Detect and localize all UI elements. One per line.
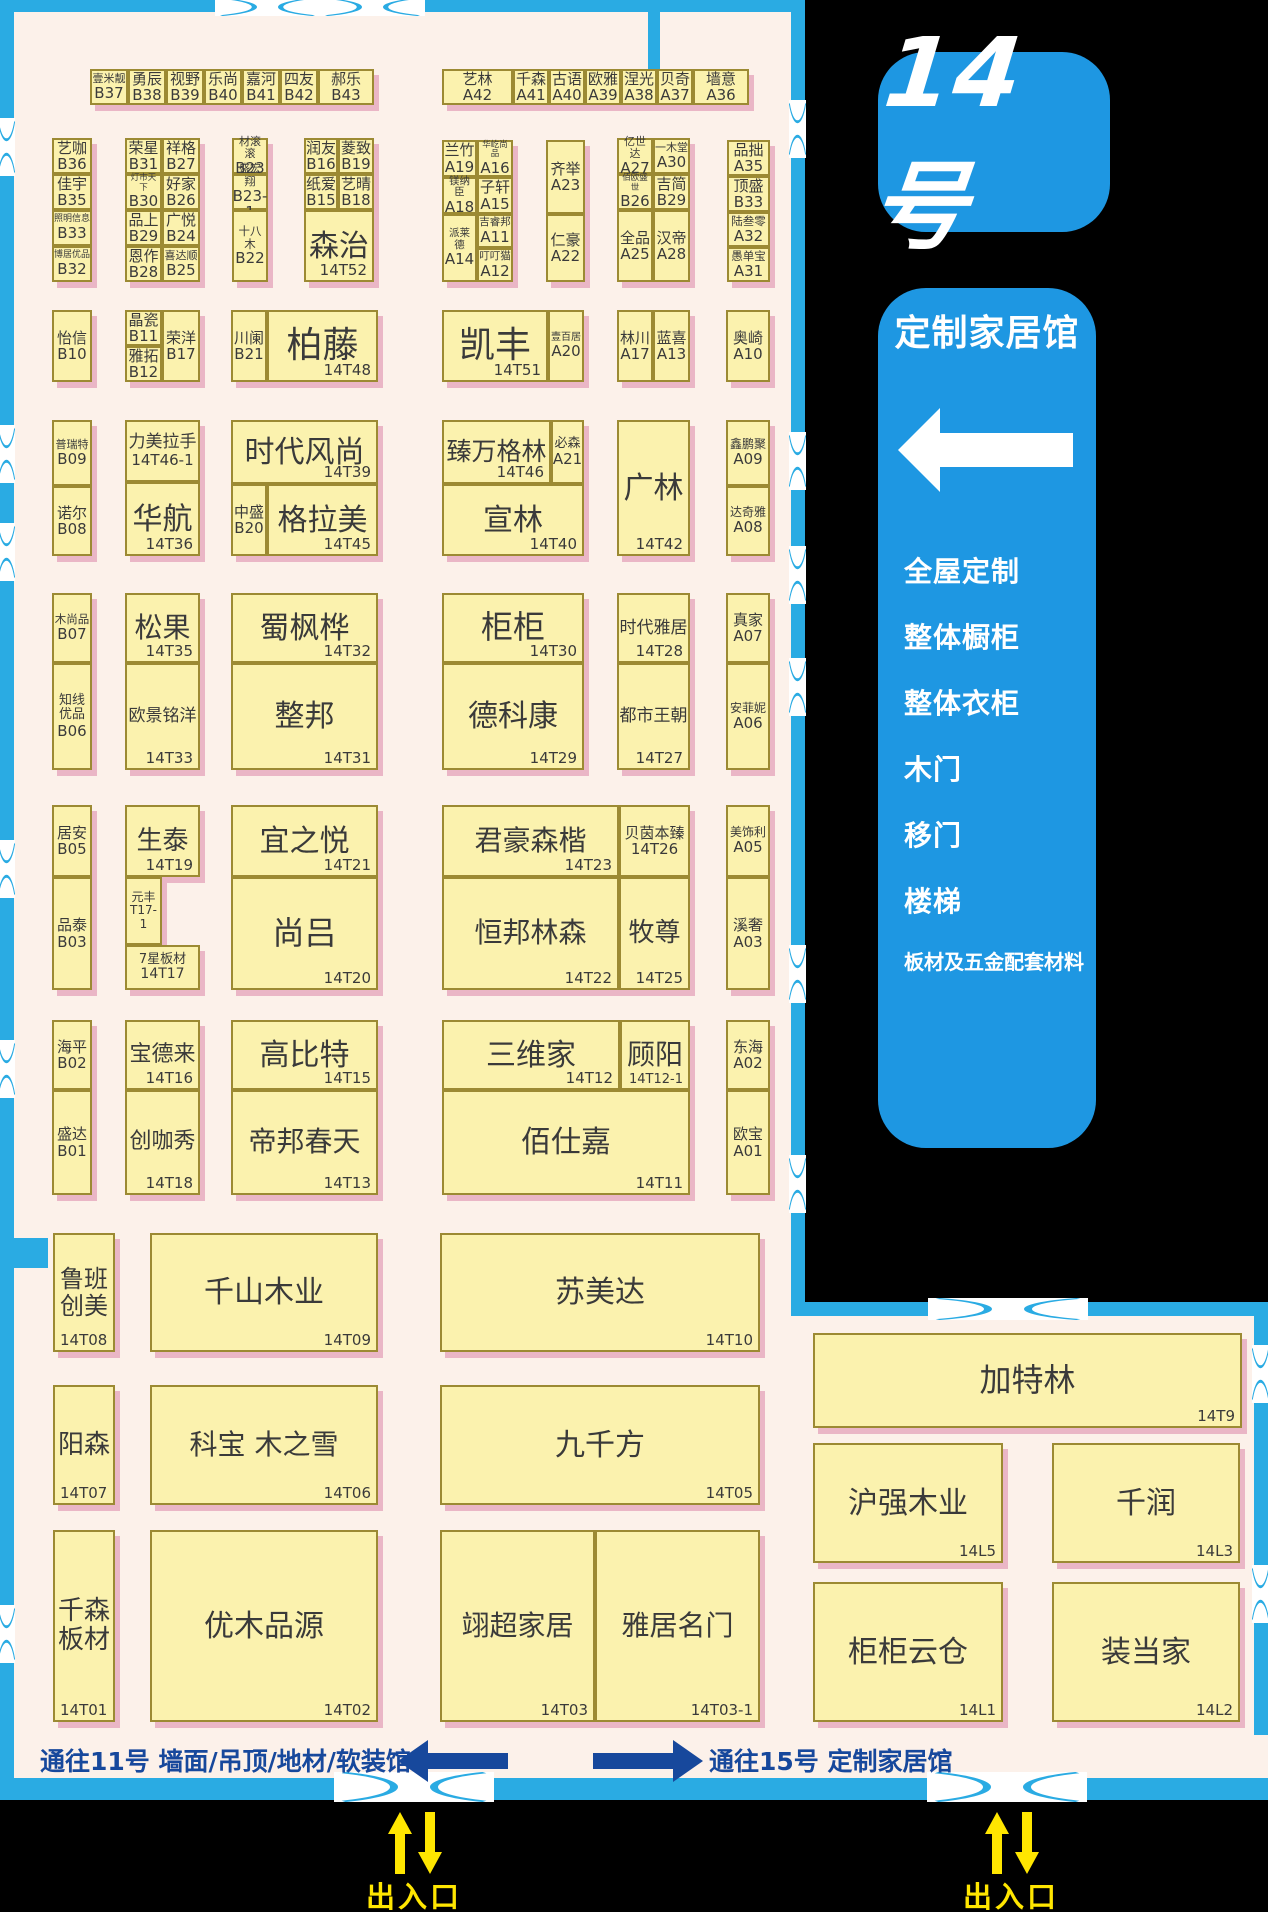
booth-id: B39 (170, 87, 199, 104)
booth-id: B20 (234, 520, 263, 537)
booth: 佰仕嘉14T11 (442, 1090, 690, 1195)
booth-id: B33 (57, 225, 86, 242)
booth-name: 科宝 木之雪 (190, 1430, 339, 1461)
booth-name: 东海 (733, 1039, 763, 1056)
booth-id: 14T48 (324, 363, 371, 378)
booth-id: A28 (657, 246, 686, 263)
booth-id: 14T45 (324, 537, 371, 552)
booth-name: 齐举 (550, 161, 580, 178)
booth: 佰欧盛世B26 (617, 174, 653, 210)
booth: 千山木业14T09 (150, 1233, 378, 1352)
door-icon (789, 100, 806, 158)
booth: 森治14T52 (304, 210, 374, 282)
booth: 镁纳臣A18 (442, 177, 477, 214)
booth-name: 贝茵本臻 (624, 825, 684, 842)
booth-name: 蜀枫桦 (260, 612, 350, 645)
booth-name: 苏美达 (555, 1276, 645, 1309)
booth: 时代雅居14T28 (617, 593, 690, 663)
booth-id: A21 (553, 451, 582, 468)
booth: 安菲妮A06 (726, 663, 770, 770)
booth: 艺咖B36 (52, 138, 92, 174)
booth-id: 14T12 (566, 1071, 613, 1086)
booth-name: 吉睿邦 (479, 217, 511, 229)
booth: 德科康14T29 (442, 663, 584, 770)
booth-id: A25 (620, 246, 649, 263)
category-item: 木门 (904, 748, 1096, 788)
booth-name: 壹米靓 (93, 73, 126, 85)
booth-id: A41 (516, 87, 545, 104)
booth-id: B16 (306, 156, 335, 173)
booth-id: 14T22 (565, 971, 612, 986)
hall-number: 14号 (865, 17, 1123, 268)
arrow-down-icon (418, 1812, 442, 1874)
booth-name: 君豪森楷 (474, 826, 586, 857)
booth: 臻万格林14T46 (442, 420, 551, 484)
booth-name: 好家 (166, 176, 196, 193)
booth-name: 知线优品 (54, 694, 90, 723)
booth: 贝奇A37 (657, 69, 693, 105)
category-item: 板材及五金配套材料 (904, 946, 1096, 975)
category-panel: 定制家居馆 全屋定制整体橱柜整体衣柜木门移门楼梯板材及五金配套材料 (878, 288, 1096, 1148)
booth: 品拙A35 (727, 140, 770, 176)
booth-name: 纸爱 (306, 176, 336, 193)
booth-name: 凯丰 (459, 326, 531, 366)
door-icon (0, 1040, 15, 1098)
booth-id: 14T46-1 (131, 452, 193, 469)
booth-id: A39 (588, 87, 617, 104)
booth-id: 14T09 (324, 1333, 371, 1348)
booth-name: 顾阳 (627, 1040, 683, 1071)
booth: 祥格B27 (162, 138, 200, 174)
booth: 子轩A15 (477, 177, 513, 214)
booth-name: 必森 (554, 437, 580, 451)
booth-id: B11 (129, 328, 158, 345)
booth-id: B05 (57, 841, 86, 858)
booth-name: 整邦 (275, 700, 335, 733)
booth-name: 诺尔 (57, 505, 87, 522)
entrance-arrows-right (985, 1812, 1039, 1874)
booth-id: B03 (57, 934, 86, 951)
booth: 古语A40 (549, 69, 585, 105)
booth: 美饰利A05 (726, 805, 770, 877)
category-item: 移门 (904, 814, 1096, 854)
booth-name: 7星板材 (139, 953, 186, 967)
booth-name: 生泰 (136, 827, 188, 856)
booth-name: 牧尊 (628, 919, 680, 948)
booth-id: A31 (734, 263, 763, 280)
booth-id: 14T20 (324, 971, 371, 986)
booth: 海平B02 (52, 1020, 92, 1090)
passage-right-label: 通往15号 定制家居馆 (709, 1742, 953, 1778)
booth: 汉帝A28 (653, 210, 690, 282)
booth: 佳宇B35 (52, 174, 92, 210)
booth-name: 尚吕 (272, 916, 336, 951)
booth: 知线优品B06 (52, 663, 92, 770)
booth-id: A37 (660, 87, 689, 104)
booth: 勇辰B38 (128, 69, 166, 105)
booth-id: 14T35 (146, 644, 193, 659)
booth: 千润14L3 (1052, 1443, 1240, 1563)
booth: 品泰B03 (52, 877, 92, 990)
wall (14, 1238, 48, 1268)
bottom-bar: 通往11号 墙面/吊顶/地材/软装馆 通往15号 定制家居馆 (0, 1735, 1268, 1778)
booth: 生泰14T19 (125, 805, 200, 877)
booth: 嘉河B41 (242, 69, 280, 105)
booth-name: 柜柜 (481, 610, 545, 645)
booth-id: B15 (306, 192, 335, 209)
booth: 照明信息B33 (52, 210, 92, 246)
booth-id: 14T40 (530, 537, 577, 552)
booth-id: B21 (234, 346, 263, 363)
booth-id: 14T07 (60, 1486, 107, 1501)
booth: 齐举A23 (546, 140, 585, 214)
booth-id: A36 (706, 87, 735, 104)
booth-id: B02 (57, 1055, 86, 1072)
booth-name: 奥崎 (733, 330, 763, 347)
booth-id: A15 (480, 196, 509, 213)
booth: 创咖秀14T18 (125, 1090, 200, 1195)
booth-name: 千山木业 (204, 1276, 324, 1309)
booth-name: 格拉美 (278, 504, 368, 537)
booth-name: 翊超家居 (461, 1611, 573, 1642)
booth-name: 千森 (516, 71, 546, 88)
booth: 格拉美14T45 (267, 484, 378, 556)
booth: 郝乐B43 (318, 69, 374, 105)
booth-name: 安菲妮 (730, 702, 766, 715)
booth-id: 14T9 (1197, 1409, 1235, 1424)
booth: 全品A25 (617, 210, 653, 282)
booth-name: 全品 (620, 230, 650, 247)
booth-id: 14T01 (60, 1703, 107, 1718)
booth-name: 华航 (133, 503, 193, 536)
booth-name: 汉帝 (656, 230, 686, 247)
booth: 东海A02 (726, 1020, 770, 1090)
booth: 整邦14T31 (231, 663, 378, 770)
booth-id: 14T46 (497, 465, 544, 480)
booth-id: 14T31 (324, 751, 371, 766)
booth: 7星板材14T17 (125, 945, 200, 990)
booth-id: 14T33 (146, 751, 193, 766)
door-icon (789, 1155, 806, 1213)
booth-id: 14T27 (636, 751, 683, 766)
booth-name: 祥格 (166, 140, 196, 157)
booth-name: 欧景铭洋 (129, 707, 197, 726)
booth: 达奇雅A08 (726, 486, 770, 556)
booth-id: 14T29 (530, 751, 577, 766)
booth-id: A12 (480, 263, 509, 280)
booth-name: 子轩 (480, 179, 510, 196)
door-icon (215, 0, 320, 16)
booth-name: 品泰 (57, 917, 87, 934)
booth: 宣林14T40 (442, 484, 584, 556)
category-item: 楼梯 (904, 880, 1096, 920)
door-icon (789, 546, 806, 604)
booth-id: B29 (657, 192, 686, 209)
booth-name: 真家 (733, 612, 763, 629)
booth-id: B36 (57, 156, 86, 173)
booth-name: 松果 (134, 613, 190, 644)
booth: 华航14T36 (125, 482, 200, 556)
booth-id: B42 (284, 87, 313, 104)
booth-name: 十八木 (234, 225, 266, 250)
booth-name: 怡信 (57, 330, 87, 347)
door-icon (0, 1605, 15, 1663)
booth: 千森板材14T01 (53, 1530, 115, 1722)
passage-right-arrow-icon (593, 1740, 703, 1786)
booth-id: B22 (235, 250, 264, 267)
booth: 帝邦春天14T13 (231, 1090, 378, 1195)
booth-name: 鲁班创美 (55, 1266, 113, 1319)
booth: 欧景铭洋14T33 (125, 663, 200, 770)
booth-id: A14 (445, 251, 474, 268)
booth-id: B09 (57, 451, 86, 468)
booth-id: B26 (166, 192, 195, 209)
booth-name: 海平 (57, 1039, 87, 1056)
booth-id: A13 (657, 346, 686, 363)
booth: 欧雅A39 (585, 69, 621, 105)
door-icon (789, 658, 806, 716)
booth-name: 愚单宝 (731, 250, 766, 263)
booth-name: 都市王朝 (620, 707, 688, 726)
booth: 派莱德A14 (442, 214, 477, 282)
booth: 亿世达A27 (617, 138, 653, 174)
booth-id: B18 (341, 192, 370, 209)
arrow-up-icon (388, 1812, 412, 1874)
booth-id: B41 (246, 87, 275, 104)
booth: 吉简B29 (653, 174, 690, 210)
door-icon (0, 118, 15, 176)
arrow-down-icon (1015, 1812, 1039, 1874)
booth: 诺尔B08 (52, 486, 92, 556)
booth-name: 喜达顺 (165, 250, 198, 262)
booth-id: A05 (733, 839, 762, 856)
booth: 十八木B22 (232, 210, 268, 282)
booth-id: 14L1 (959, 1703, 996, 1718)
booth: 华屹尚品A16 (477, 140, 513, 177)
booth-name: 嘉河 (246, 71, 276, 88)
booth-id: 14T13 (324, 1176, 371, 1191)
category-panel-title: 定制家居馆 (878, 304, 1096, 356)
booth: 吉睿邦A11 (477, 214, 513, 248)
booth: 顾阳14T12-1 (620, 1020, 690, 1090)
booth-id: B12 (129, 364, 158, 381)
booth: 好家B26 (162, 174, 200, 210)
booth-id: A30 (657, 154, 686, 171)
booth-id: 14T39 (324, 465, 371, 480)
booth: 雅拓B12 (125, 346, 162, 382)
booth: 顶盛B33 (727, 176, 770, 212)
booth-name: 装当家 (1101, 1636, 1191, 1669)
booth: 川阑B21 (231, 310, 267, 382)
booth-name: 佰仕嘉 (521, 1126, 611, 1159)
booth-id: A42 (463, 87, 492, 104)
booth: 愚单宝A31 (727, 247, 770, 282)
booth-id: T17-1 (127, 904, 160, 930)
booth-id: 14T36 (146, 537, 193, 552)
entrance-label-right: 出入口 (963, 1874, 1059, 1912)
booth: 恩作B28 (125, 246, 162, 282)
booth: 恒邦林森14T22 (442, 877, 619, 990)
booth-name: 顶盛 (733, 178, 763, 195)
booth-id: B29 (129, 228, 158, 245)
booth-name: 柜柜云仓 (848, 1636, 968, 1669)
booth-name: 宜之悦 (260, 825, 350, 858)
booth-id: A11 (480, 229, 509, 246)
booth-name: 广悦 (166, 212, 196, 229)
booth-name: 材滚滚 (234, 136, 266, 160)
booth: 雅居名门14T03-1 (595, 1530, 760, 1722)
booth: 纸爱B15 (304, 174, 338, 210)
booth: 菱致B19 (338, 138, 374, 174)
booth-id: 14T32 (324, 644, 371, 659)
booth: 高比特14T15 (231, 1020, 378, 1090)
booth: 翊超家居14T03 (440, 1530, 595, 1722)
booth-name: 涅光 (624, 71, 654, 88)
booth-name: 居安 (57, 825, 87, 842)
booth-name: 郝乐 (331, 71, 361, 88)
booth: 都市王朝14T27 (617, 663, 690, 770)
booth: 普瑞特B09 (52, 420, 92, 486)
booth: 壹百居A20 (548, 310, 584, 382)
booth-name: 九千方 (555, 1429, 645, 1462)
door-icon (1252, 1345, 1268, 1403)
booth-id: 14T19 (146, 858, 193, 873)
booth-name: 古语 (552, 71, 582, 88)
booth-id: B30 (129, 193, 158, 210)
booth-id: 14T03 (541, 1703, 588, 1718)
booth-id: 14T03-1 (691, 1703, 753, 1718)
wall (0, 0, 14, 1800)
booth: 荣洋B17 (162, 310, 200, 382)
booth-name: 千森板材 (55, 1597, 113, 1654)
booth-id: A35 (734, 158, 763, 175)
booth-name: 森治 (309, 230, 369, 263)
booth-name: 盛宏翔 (234, 163, 266, 187)
booth: 贝茵本臻14T26 (619, 805, 690, 877)
booth: 兰竹A19 (442, 140, 477, 177)
booth-name: 品上 (128, 212, 158, 229)
booth-id: 14T06 (324, 1486, 371, 1501)
booth: 盛宏翔B23-1 (232, 174, 268, 210)
booth-name: 溪奢 (733, 917, 763, 934)
booth-id: B37 (94, 85, 123, 102)
booth-id: A16 (480, 160, 509, 177)
passage-left-arrow-icon (398, 1740, 508, 1786)
booth-id: 14T26 (631, 841, 678, 858)
booth: 宝德来14T16 (125, 1020, 200, 1090)
booth-name: 菱致 (341, 140, 371, 157)
booth-id: A32 (734, 228, 763, 245)
booth-id: B38 (132, 87, 161, 104)
booth-name: 欧雅 (588, 71, 618, 88)
booth-id: B01 (57, 1143, 86, 1160)
booth-name: 臻万格林 (446, 438, 546, 466)
booth-name: 叮叮猫 (479, 251, 511, 263)
booth: 荣星B31 (125, 138, 162, 174)
booth: 喜达顺B25 (162, 246, 200, 282)
booth-name: 品拙 (733, 142, 763, 159)
booth: 三维家14T12 (442, 1020, 620, 1090)
booth: 润友B16 (304, 138, 338, 174)
booth-id: A06 (733, 715, 762, 732)
booth-name: 吉简 (656, 176, 686, 193)
door-icon (0, 840, 15, 898)
booth: 一木堂A30 (653, 138, 690, 174)
booth-name: 四友 (284, 71, 314, 88)
booth: 九千方14T05 (440, 1385, 760, 1505)
booth-id: 14T18 (146, 1176, 193, 1191)
booth-name: 加特林 (979, 1363, 1075, 1398)
booth: 晶瓷B11 (125, 310, 162, 346)
booth: 阳森14T07 (53, 1385, 115, 1505)
booth-id: A03 (733, 934, 762, 951)
booth-id: 14T23 (565, 858, 612, 873)
booth: 松果14T35 (125, 593, 200, 663)
booth-name: 佰欧盛世 (619, 174, 651, 193)
booth-name: 视野 (170, 71, 200, 88)
booth: 柜柜云仓14L1 (813, 1582, 1003, 1722)
booth-name: 中盛 (234, 504, 264, 521)
booth: 奥崎A10 (726, 310, 770, 382)
booth: 鲁班创美14T08 (53, 1233, 115, 1352)
booth-id: 14T21 (324, 858, 371, 873)
booth-name: 时代雅居 (620, 619, 688, 638)
booth-name: 蓝喜 (656, 330, 686, 347)
booth-id: B27 (166, 156, 195, 173)
booth-name: 贝奇 (660, 71, 690, 88)
booth-id: 14T10 (706, 1333, 753, 1348)
booth-id: A07 (733, 628, 762, 645)
booth-id: B17 (166, 346, 195, 363)
booth-id: A08 (733, 519, 762, 536)
booth: 优木品源14T02 (150, 1530, 378, 1722)
booth-id: 14L5 (959, 1544, 996, 1559)
category-item: 整体橱柜 (904, 616, 1096, 656)
booth-id: A09 (733, 451, 762, 468)
booth-id: A02 (733, 1055, 762, 1072)
booth-name: 阳森 (58, 1431, 110, 1460)
booth-name: 柏藤 (286, 326, 358, 366)
booth-name: 恒邦林森 (474, 918, 586, 949)
booth: 欧宝A01 (726, 1090, 770, 1195)
booth: 蜀枫桦14T32 (231, 593, 378, 663)
booth-name: 荣星 (128, 140, 158, 157)
booth-name: 力美拉手 (129, 433, 197, 452)
booth-name: 雅拓 (128, 348, 158, 365)
booth-name: 仁豪 (550, 232, 580, 249)
booth-id: B06 (57, 723, 86, 740)
entrance-arrows-left (388, 1812, 442, 1874)
booth-name: 宝德来 (129, 1043, 195, 1067)
booth: 时代风尚14T39 (231, 420, 378, 484)
booth: 宜之悦14T21 (231, 805, 378, 877)
booth-name: 盛达 (57, 1126, 87, 1143)
booth-name: 普瑞特 (56, 439, 89, 451)
booth-id: 14T16 (146, 1071, 193, 1086)
booth-id: B24 (166, 228, 195, 245)
booth-id: A38 (624, 87, 653, 104)
booth: 广悦B24 (162, 210, 200, 246)
booth-id: A18 (445, 199, 474, 216)
booth: 苏美达14T10 (440, 1233, 760, 1352)
booth: 四友B42 (280, 69, 318, 105)
booth-id: A10 (733, 346, 762, 363)
booth-id: B25 (166, 262, 195, 279)
booth-name: 川阑 (234, 330, 264, 347)
booth: 千森A41 (513, 69, 549, 105)
booth-name: 佳宇 (57, 176, 87, 193)
booth: 壹米靓B37 (90, 69, 128, 105)
